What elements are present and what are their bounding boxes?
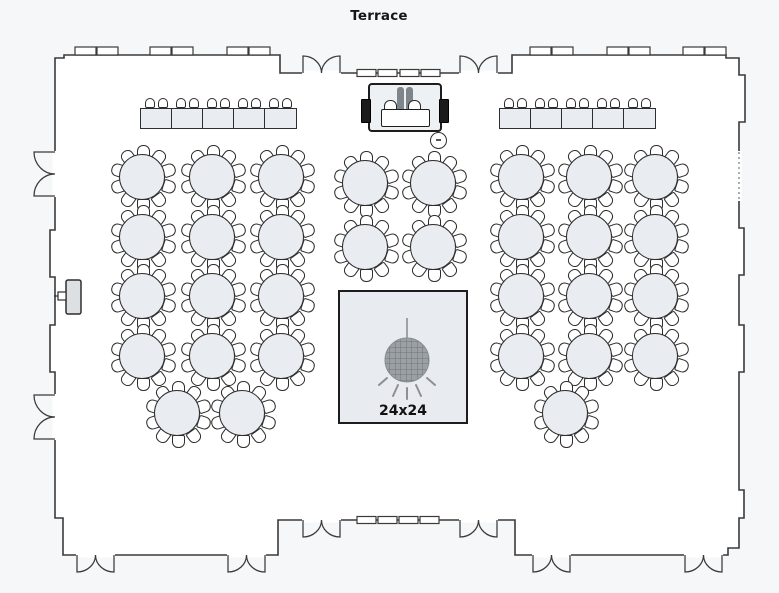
round-table-top (189, 273, 235, 319)
chair (628, 98, 638, 108)
chair (207, 98, 217, 108)
chair (282, 98, 292, 108)
round-table[interactable] (119, 214, 165, 260)
round-table[interactable] (632, 273, 678, 319)
round-table[interactable] (258, 333, 304, 379)
round-table-top (498, 333, 544, 379)
chair (566, 98, 576, 108)
round-table[interactable] (258, 214, 304, 260)
round-table-top (189, 333, 235, 379)
round-table[interactable] (258, 154, 304, 200)
round-table-top (498, 273, 544, 319)
banquet-table[interactable] (592, 108, 625, 129)
chair (158, 98, 168, 108)
round-table[interactable] (632, 154, 678, 200)
speaker-icon (439, 99, 449, 123)
round-table[interactable] (566, 333, 612, 379)
round-table-top (566, 273, 612, 319)
round-table-top (632, 333, 678, 379)
speaker-icon (361, 99, 371, 123)
round-table-top (498, 214, 544, 260)
banquet-table[interactable] (623, 108, 656, 129)
round-table[interactable] (410, 224, 456, 270)
chair (145, 98, 155, 108)
dance-floor[interactable]: 24x24 (338, 290, 468, 424)
banquet-table[interactable] (530, 108, 563, 129)
round-table[interactable] (189, 154, 235, 200)
round-table-top (258, 333, 304, 379)
round-table-top (119, 214, 165, 260)
round-table[interactable] (154, 390, 200, 436)
dance-floor-size-label: 24x24 (340, 403, 466, 419)
round-table-top (632, 214, 678, 260)
round-table-top (410, 160, 456, 206)
chair (579, 98, 589, 108)
round-table[interactable] (632, 333, 678, 379)
round-table[interactable] (566, 154, 612, 200)
chair (597, 98, 607, 108)
cocktail-table[interactable] (430, 132, 447, 149)
round-table[interactable] (189, 273, 235, 319)
round-table[interactable] (498, 214, 544, 260)
round-table-top (189, 154, 235, 200)
banquet-table[interactable] (561, 108, 594, 129)
chair (650, 378, 663, 391)
chair (176, 98, 186, 108)
chair (516, 378, 529, 391)
round-table-top (154, 390, 200, 436)
round-table-top (258, 214, 304, 260)
round-table[interactable] (498, 333, 544, 379)
chair (172, 435, 185, 448)
chair (189, 98, 199, 108)
chair (560, 435, 573, 448)
round-table-top (119, 154, 165, 200)
chair (238, 98, 248, 108)
chair (504, 98, 514, 108)
round-table-top (566, 214, 612, 260)
chair (517, 98, 527, 108)
chair (641, 98, 651, 108)
round-table[interactable] (219, 390, 265, 436)
chair (137, 378, 150, 391)
round-table[interactable] (410, 160, 456, 206)
chair (610, 98, 620, 108)
banquet-table[interactable] (171, 108, 204, 129)
head-table-stage[interactable] (368, 83, 442, 132)
round-table[interactable] (119, 154, 165, 200)
round-table-top (342, 160, 388, 206)
round-table[interactable] (189, 214, 235, 260)
chair (535, 98, 545, 108)
round-table-top (189, 214, 235, 260)
round-table-top (410, 224, 456, 270)
chair (251, 98, 261, 108)
banquet-table[interactable] (202, 108, 235, 129)
round-table-top (342, 224, 388, 270)
banquet-table[interactable] (140, 108, 173, 129)
round-table-top (119, 273, 165, 319)
round-table-top (258, 154, 304, 200)
round-table-top (542, 390, 588, 436)
chair (548, 98, 558, 108)
banquet-table[interactable] (499, 108, 532, 129)
round-table-top (258, 273, 304, 319)
furniture-layer: 24x24 (0, 0, 779, 593)
round-table[interactable] (566, 214, 612, 260)
round-table-top (119, 333, 165, 379)
banquet-table[interactable] (264, 108, 297, 129)
round-table[interactable] (498, 154, 544, 200)
round-table[interactable] (258, 273, 304, 319)
round-table[interactable] (119, 333, 165, 379)
chair (360, 269, 373, 282)
round-table-top (566, 154, 612, 200)
round-table[interactable] (119, 273, 165, 319)
round-table[interactable] (632, 214, 678, 260)
round-table[interactable] (342, 160, 388, 206)
round-table[interactable] (542, 390, 588, 436)
chair (428, 269, 441, 282)
chair (220, 98, 230, 108)
head-table (381, 109, 430, 127)
round-table-top (566, 333, 612, 379)
chair (237, 435, 250, 448)
chair (269, 98, 279, 108)
round-table-top (632, 154, 678, 200)
round-table-top (632, 273, 678, 319)
round-table-top (498, 154, 544, 200)
banquet-table[interactable] (233, 108, 266, 129)
round-table-top (219, 390, 265, 436)
round-table[interactable] (189, 333, 235, 379)
round-table[interactable] (566, 273, 612, 319)
chair (276, 378, 289, 391)
floor-plan-canvas: Terrace (0, 0, 779, 593)
round-table[interactable] (342, 224, 388, 270)
chair (207, 378, 220, 391)
round-table[interactable] (498, 273, 544, 319)
